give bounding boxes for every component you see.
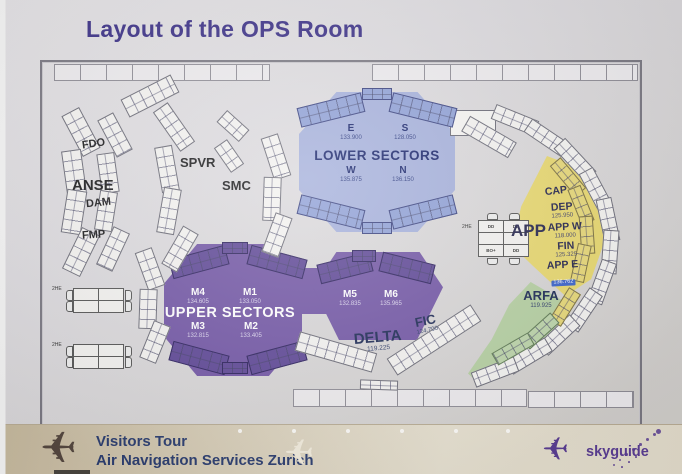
- desk-row: [352, 250, 376, 262]
- dot: [454, 429, 458, 433]
- desk-cluster-left-upper: 2HE: [66, 288, 131, 313]
- sector-label-APP-E: APP E 136.762: [539, 259, 586, 289]
- sector-label-ARFA: ARFA 119.925: [515, 289, 567, 309]
- desk-row: [362, 88, 392, 100]
- footer-band: ✈ Visitors Tour Air Navigation Services …: [0, 424, 682, 474]
- sector-label-S: S 128.050: [381, 124, 429, 141]
- sector-label-APP-W: APP W 118.000: [542, 221, 589, 241]
- dot: [238, 429, 242, 433]
- lower-sectors-title: LOWER SECTORS: [299, 148, 455, 163]
- swoosh-dot: [656, 429, 661, 434]
- swoosh-dot: [613, 464, 615, 466]
- sector-label-DEP: DEP 125.950: [541, 201, 582, 221]
- skyguide-airplane-icon: ✈: [542, 433, 569, 465]
- photo-edge-mark: [54, 470, 90, 474]
- rack-label: 2HE: [462, 224, 472, 230]
- workstation-label-spvr: SPVR: [180, 155, 215, 170]
- sector-label-M3: M3 132.815: [174, 322, 222, 339]
- dot: [346, 429, 350, 433]
- desk-cluster-left-lower: 2HE: [66, 344, 131, 369]
- desk-row: [362, 222, 392, 234]
- swoosh-dot: [646, 438, 649, 441]
- swoosh-dot: [639, 443, 642, 446]
- airplane-icon-white: ✈: [284, 435, 314, 471]
- footer-line1: Visitors Tour: [96, 432, 314, 451]
- swoosh-dot: [635, 456, 637, 458]
- sector-label-M6: M6 135.965: [367, 290, 415, 307]
- footer-line2: Air Navigation Services Zurich: [96, 451, 314, 470]
- ops-room-poster: Layout of the OPS Room E 133.900 S 128.0…: [0, 0, 682, 474]
- swoosh-dot: [653, 433, 656, 436]
- rack-label: 2HE: [52, 286, 62, 292]
- swoosh-dot: [619, 459, 621, 461]
- desk-row: [222, 242, 248, 254]
- swoosh-dot: [632, 448, 635, 451]
- swoosh-dot: [621, 466, 623, 468]
- cabinet-band-bottom: [293, 389, 527, 407]
- sector-label-M1: M1 133.050: [226, 288, 274, 305]
- rack-label: 2HE: [52, 342, 62, 348]
- sector-label-W: W 135.875: [327, 166, 375, 183]
- sector-label-M4: M4 134.605: [174, 288, 222, 305]
- sector-label-FIN: FIN 125.325: [546, 240, 587, 259]
- dot: [506, 429, 510, 433]
- highlighted-frequency: 136.762: [551, 279, 575, 286]
- dot: [292, 429, 296, 433]
- upper-sectors-title: UPPER SECTORS: [160, 305, 300, 321]
- swoosh-dot: [628, 461, 630, 463]
- desk-row: [222, 362, 248, 374]
- airplane-icon-dark: ✈: [40, 427, 77, 471]
- footer-text: Visitors Tour Air Navigation Services Zu…: [96, 432, 314, 470]
- dot: [400, 429, 404, 433]
- page-title: Layout of the OPS Room: [86, 16, 364, 43]
- workstation-label-fmp: FMP: [82, 228, 106, 242]
- sector-label-E: E 133.900: [327, 124, 375, 141]
- cabinet-band-bottom-right: [528, 391, 634, 408]
- desk-row: [360, 379, 398, 390]
- workstation-label-anse: ANSE: [72, 177, 114, 194]
- workstation-label-smc: SMC: [222, 178, 251, 193]
- sector-label-M2: M2 133.405: [227, 322, 275, 339]
- cabinet-band-top-right: [372, 64, 638, 81]
- skyguide-logo-text: skyguide: [586, 444, 649, 460]
- swoosh-dot: [625, 453, 628, 456]
- sector-label-N: N 136.150: [379, 166, 427, 183]
